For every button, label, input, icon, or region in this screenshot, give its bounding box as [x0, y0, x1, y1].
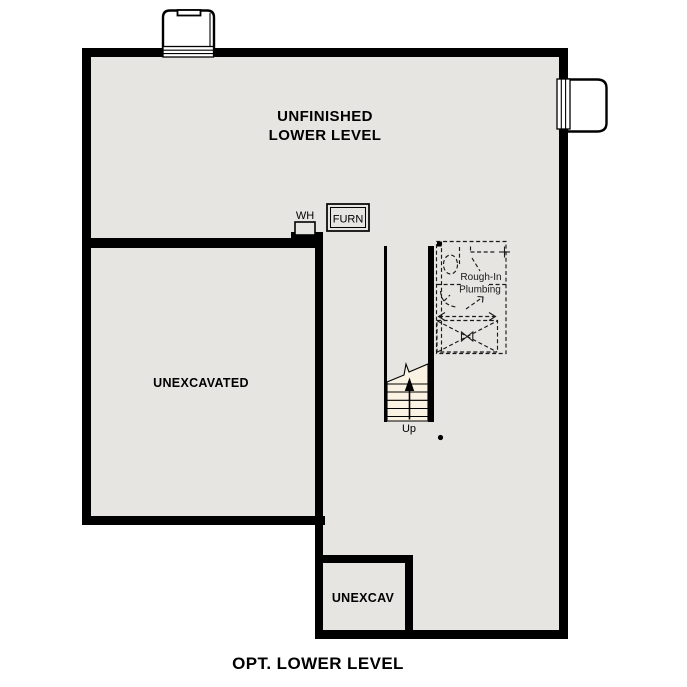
floor-plan-drawing: UNFINISHED LOWER LEVEL UNEXCAVATED WH FU… — [0, 0, 687, 687]
water-heater-label: WH — [296, 210, 314, 222]
furnace-label: FURN — [333, 214, 364, 226]
wall-right — [559, 48, 568, 639]
window-right — [557, 79, 570, 129]
plumbing-label-line1: Rough-In — [460, 272, 501, 283]
floor-main-upper — [86, 52, 564, 252]
wall-top — [82, 48, 568, 57]
floor-plan-page: UNFINISHED LOWER LEVEL UNEXCAVATED WH FU… — [0, 0, 687, 687]
water-heater-box — [295, 222, 315, 235]
wall-stair-right — [428, 246, 434, 422]
reference-dot — [438, 435, 443, 440]
plan-caption: OPT. LOWER LEVEL — [232, 654, 404, 673]
wall-unexcavated-bottom — [82, 516, 325, 525]
wall-bottom — [315, 630, 568, 639]
stairs-up-label: Up — [402, 423, 416, 435]
wall-unexcav-top — [315, 555, 413, 563]
unexcavated-label: UNEXCAVATED — [153, 376, 249, 390]
wall-unexcav-right — [405, 555, 413, 639]
window-well-top — [163, 10, 214, 57]
wall-center-vertical — [315, 246, 323, 639]
plumbing-label-line2: Plumbing — [459, 285, 501, 296]
window-well-right — [557, 79, 607, 132]
main-room-label-line2: LOWER LEVEL — [269, 127, 382, 144]
window-top — [163, 47, 214, 58]
wall-left — [82, 48, 91, 525]
plumbing-corner-marker — [437, 242, 442, 247]
unexcav-small-label: UNEXCAV — [332, 591, 395, 605]
wall-divider-horizontal — [82, 238, 323, 248]
window-well-right-outline — [567, 80, 607, 132]
main-room-label-line1: UNFINISHED — [277, 108, 373, 125]
window-well-top-notch — [178, 10, 201, 16]
